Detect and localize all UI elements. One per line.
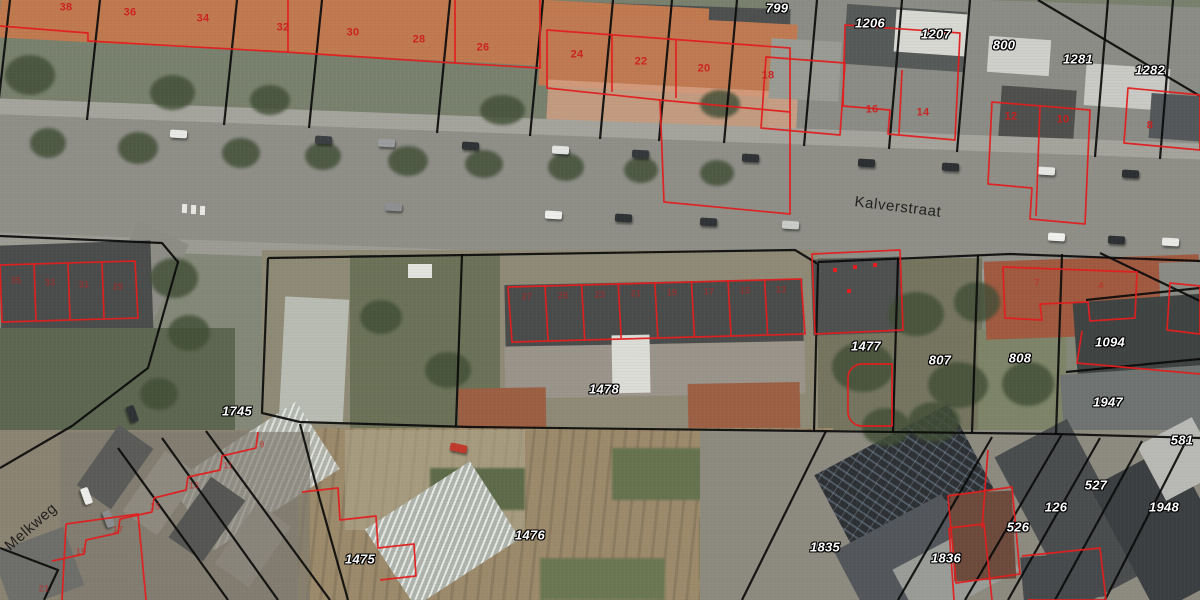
parcel-number-label: 808	[1009, 352, 1032, 365]
house-number-label: 13	[189, 482, 200, 491]
house-number-label: 16	[866, 105, 879, 116]
parcel-number-label: 126	[1045, 501, 1068, 514]
parcel-number-label: 1475	[345, 553, 375, 566]
parcel-number-label: 1478	[589, 383, 619, 396]
parcel-number-label: 1094	[1095, 336, 1125, 349]
parcel-number-label: 526	[1007, 521, 1030, 534]
house-number-label: 17	[704, 288, 715, 297]
house-number-label: 31	[79, 281, 90, 290]
parcel-number-label: 1947	[1093, 396, 1123, 409]
house-number-label: 28	[413, 35, 426, 46]
parcel-number-label: 581	[1171, 434, 1194, 447]
parcel-number-label: 1745	[222, 405, 252, 418]
house-number-label: 12	[1005, 112, 1018, 123]
house-number-label: 26	[477, 43, 490, 54]
house-number-label: 21	[631, 290, 642, 299]
parcel-number-label: 527	[1085, 479, 1108, 492]
house-number-label: 19	[76, 548, 87, 557]
house-number-label: 23	[595, 291, 606, 300]
house-number-label: 20	[698, 64, 711, 75]
parcel-number-label: 1282	[1135, 64, 1165, 77]
house-number-label: 13	[776, 286, 787, 295]
house-number-label: 38	[60, 3, 73, 14]
house-number-label: 18	[762, 71, 775, 82]
house-number-label: 17	[113, 526, 124, 535]
parcel-number-label: 1206	[855, 17, 885, 30]
house-number-label: 19	[667, 289, 678, 298]
parcel-number-label: 1207	[921, 28, 951, 41]
house-number-label: 7	[1034, 279, 1039, 288]
map-label-layer: Kalverstraat Melkweg 7991206120780012811…	[0, 0, 1200, 600]
house-number-label: 24	[571, 50, 584, 61]
aerial-cadastral-map[interactable]: Kalverstraat Melkweg 7991206120780012811…	[0, 0, 1200, 600]
street-label-kalverstraat: Kalverstraat	[854, 194, 942, 220]
house-number-label: 33	[45, 279, 56, 288]
house-number-label: 11	[223, 462, 233, 471]
house-number-label: 21	[39, 585, 50, 594]
house-number-label: 34	[197, 14, 210, 25]
house-number-label: 36	[124, 8, 137, 19]
house-number-label: 15	[150, 503, 161, 512]
parcel-number-label: 800	[993, 39, 1016, 52]
parcel-number-label: 1281	[1063, 53, 1093, 66]
parcel-number-label: 1835	[810, 541, 840, 554]
parcel-number-label: 807	[929, 354, 952, 367]
parcel-number-label: 1836	[931, 552, 961, 565]
house-number-label: 10	[1057, 115, 1070, 126]
parcel-number-label: 1476	[515, 529, 545, 542]
house-number-label: 29	[113, 283, 124, 292]
parcel-number-label: 799	[766, 2, 789, 15]
house-number-label: 30	[347, 28, 360, 39]
house-number-label: 22	[635, 57, 648, 68]
parcel-number-label: 1948	[1149, 501, 1179, 514]
house-number-label: 32	[277, 23, 290, 34]
house-number-label: 25	[558, 292, 569, 301]
parcel-number-label: 1477	[851, 340, 881, 353]
house-number-label: 8	[1147, 121, 1153, 132]
house-number-label: 14	[917, 108, 930, 119]
house-number-label: 9	[259, 441, 264, 450]
house-number-label: 27	[522, 293, 533, 302]
house-number-label: 4	[1098, 282, 1103, 291]
street-label-melkweg: Melkweg	[2, 501, 60, 554]
house-number-label: 35	[11, 277, 22, 286]
house-number-label: 15	[740, 287, 751, 296]
